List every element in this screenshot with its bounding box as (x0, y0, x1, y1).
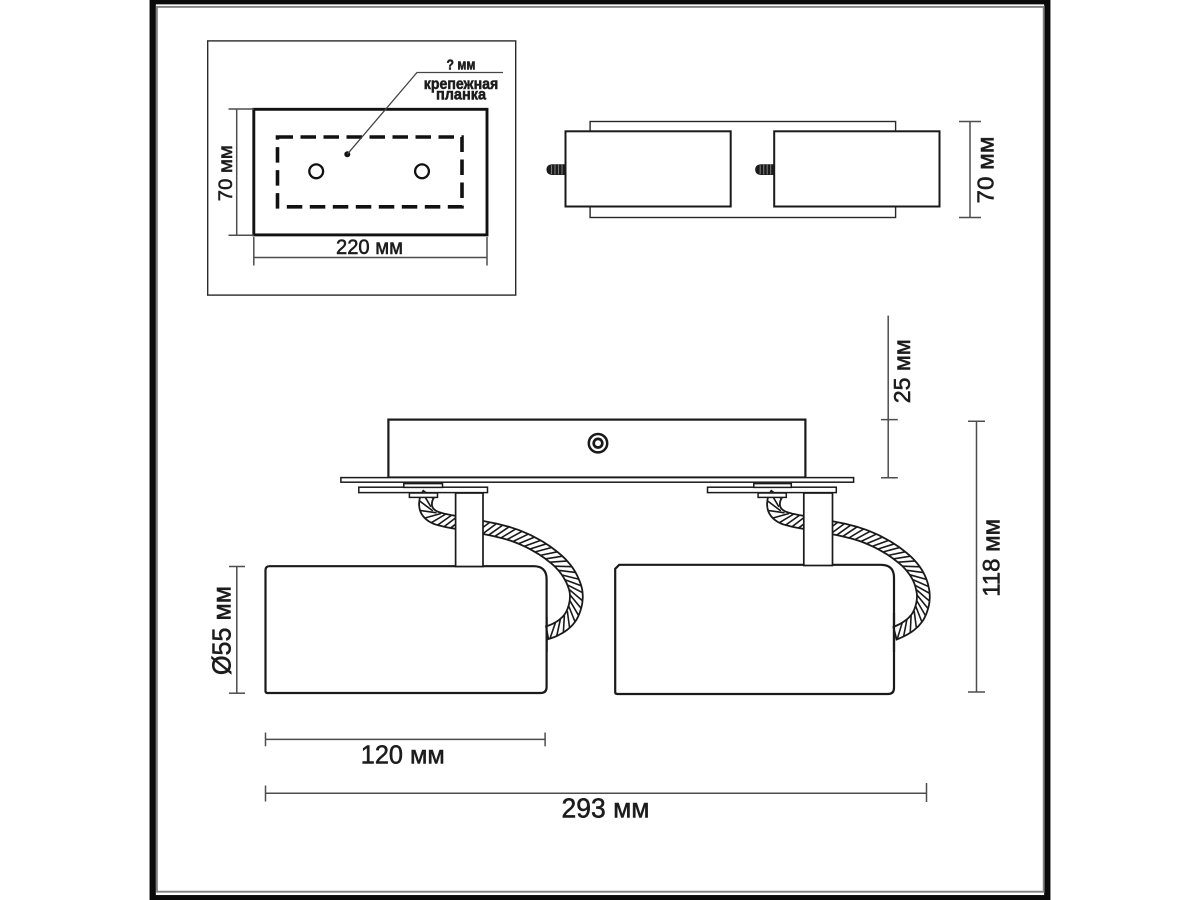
svg-text:70 мм: 70 мм (973, 137, 999, 204)
svg-text:293 мм: 293 мм (562, 793, 650, 824)
svg-text:120 мм: 120 мм (361, 740, 445, 770)
svg-text:планка: планка (436, 87, 486, 104)
svg-text:25 мм: 25 мм (889, 339, 915, 403)
svg-text:220 мм: 220 мм (336, 236, 403, 259)
svg-text:Ø55 мм: Ø55 мм (207, 586, 237, 675)
svg-text:? мм: ? мм (447, 56, 476, 73)
svg-text:70 мм: 70 мм (215, 145, 237, 201)
svg-text:118 мм: 118 мм (979, 519, 1006, 597)
